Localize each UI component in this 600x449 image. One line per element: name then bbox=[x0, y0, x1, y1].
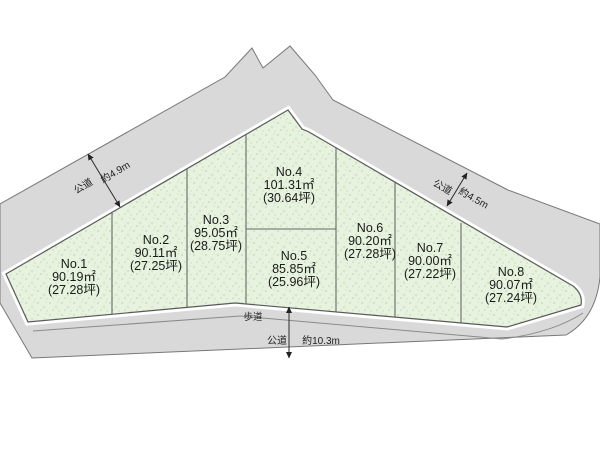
sidewalk-label: 歩道 bbox=[243, 311, 263, 323]
plot-4-number: No.4 bbox=[276, 165, 302, 179]
plot-1-number: No.1 bbox=[61, 257, 87, 271]
plot-6-number: No.6 bbox=[357, 221, 383, 235]
plot-3-tsubo: (28.75坪) bbox=[190, 239, 242, 253]
plot-5-area: 85.85㎡ bbox=[272, 262, 316, 276]
plot-4-tsubo: (30.64坪) bbox=[263, 191, 315, 205]
diagram-canvas: No.1 90.19㎡ (27.28坪) No.2 90.11㎡ (27.25坪… bbox=[0, 0, 600, 449]
land-plot-diagram: No.1 90.19㎡ (27.28坪) No.2 90.11㎡ (27.25坪… bbox=[0, 0, 600, 449]
plot-6-area: 90.20㎡ bbox=[348, 234, 392, 248]
plot-5-tsubo: (25.96坪) bbox=[268, 275, 320, 289]
plot-1-area: 90.19㎡ bbox=[52, 270, 96, 284]
plot-2-number: No.2 bbox=[143, 233, 169, 247]
plot-7-number: No.7 bbox=[417, 241, 443, 255]
plot-2-area: 90.11㎡ bbox=[135, 246, 178, 260]
plot-7-area: 90.00㎡ bbox=[408, 254, 452, 268]
plot-8-tsubo: (27.24坪) bbox=[485, 291, 537, 305]
bottom-road-width: 約10.3m bbox=[302, 334, 340, 347]
plot-7-tsubo: (27.22坪) bbox=[404, 267, 456, 281]
plot-4-area: 101.31㎡ bbox=[264, 178, 315, 192]
plot-8-area: 90.07㎡ bbox=[489, 278, 533, 292]
plot-2-tsubo: (27.25坪) bbox=[130, 259, 182, 273]
plot-8-number: No.8 bbox=[498, 265, 524, 279]
plot-5-number: No.5 bbox=[281, 249, 307, 263]
bottom-road-label: 公道 bbox=[267, 334, 287, 347]
plot-1-tsubo: (27.28坪) bbox=[48, 283, 100, 297]
plot-3-number: No.3 bbox=[203, 213, 229, 227]
plot-3-area: 95.05㎡ bbox=[194, 226, 238, 240]
plot-6-tsubo: (27.28坪) bbox=[344, 247, 396, 261]
